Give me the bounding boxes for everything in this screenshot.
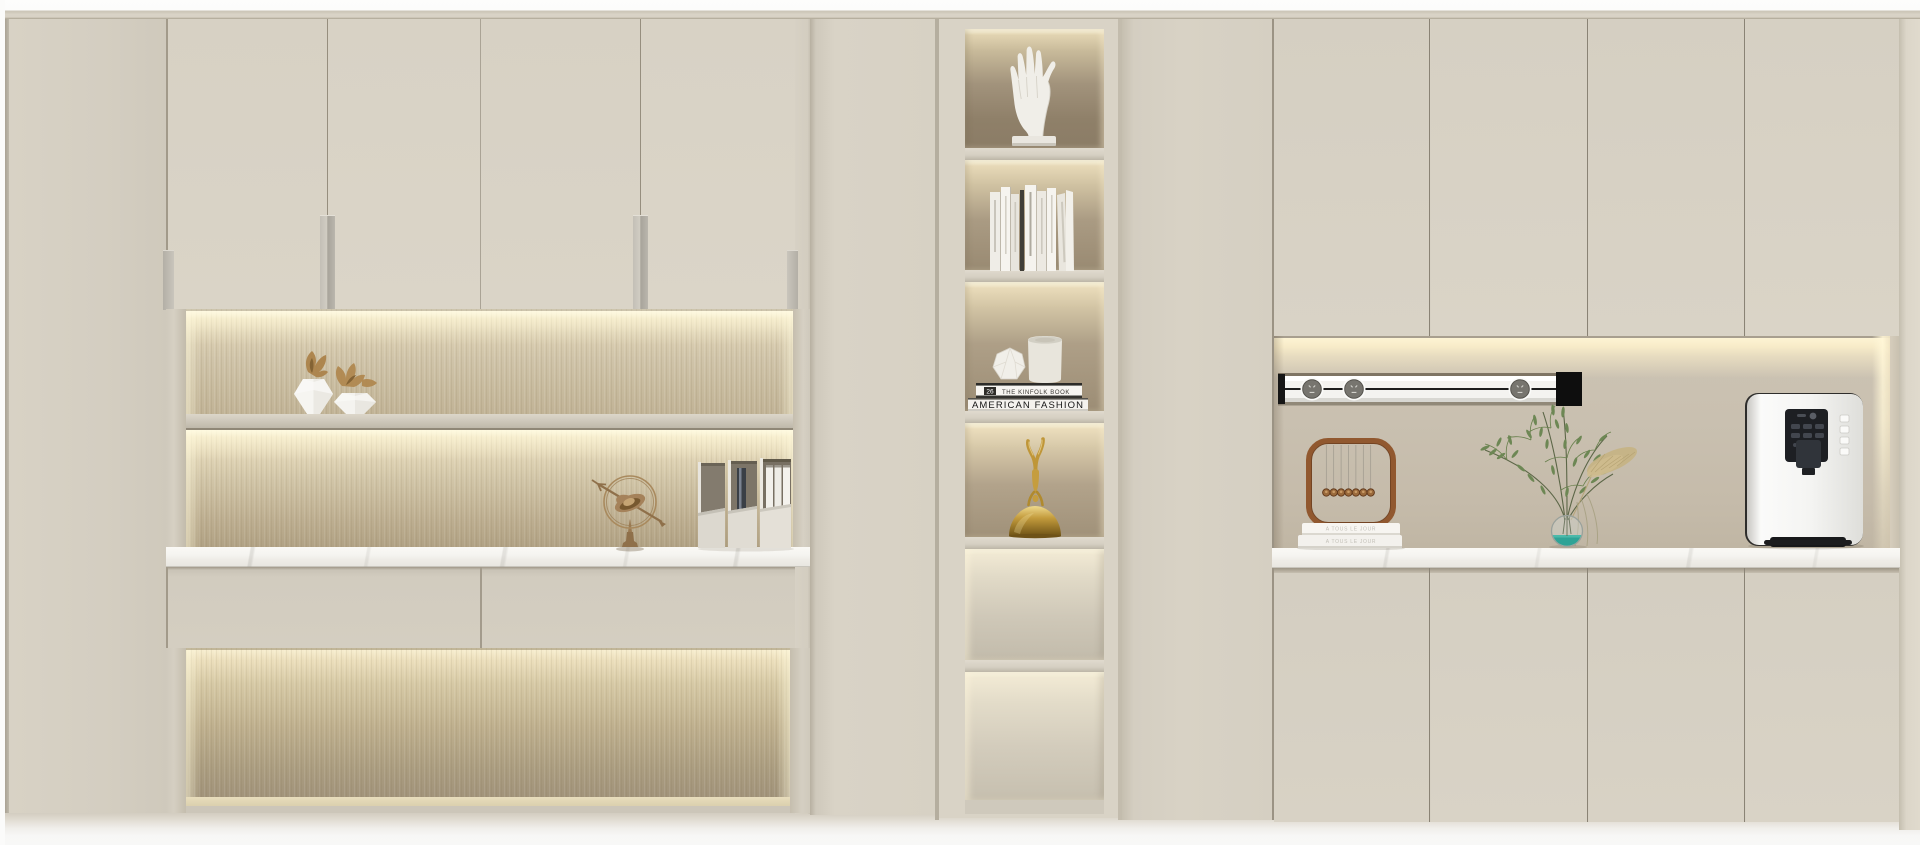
svg-text:A TOUS LE JOUR: A TOUS LE JOUR	[1326, 527, 1376, 533]
svg-text:26: 26	[986, 389, 994, 396]
svg-text:THE KINFOLK BOOK: THE KINFOLK BOOK	[1002, 390, 1070, 396]
svg-text:A TOUS LE JOUR: A TOUS LE JOUR	[1326, 539, 1376, 545]
svg-text:AMERICAN FASHION: AMERICAN FASHION	[972, 400, 1084, 411]
